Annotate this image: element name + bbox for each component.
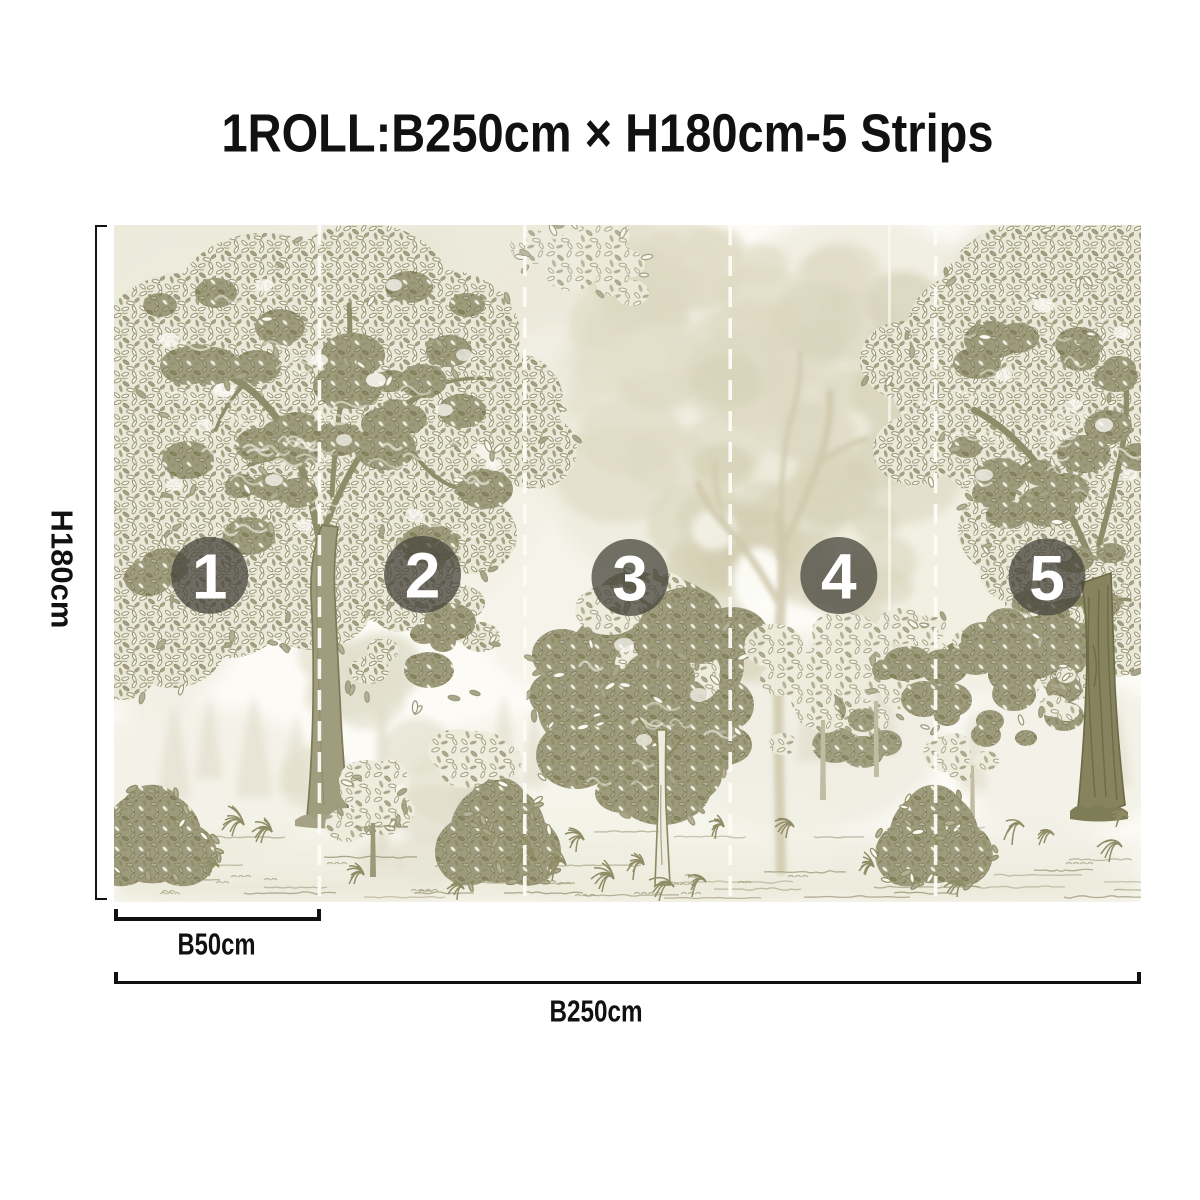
svg-text:B250cm: B250cm bbox=[550, 995, 643, 1029]
svg-text:1ROLL:B250cm × H180cm-5 Strips: 1ROLL:B250cm × H180cm-5 Strips bbox=[222, 105, 994, 164]
svg-text:H180cm: H180cm bbox=[44, 510, 79, 629]
svg-text:B50cm: B50cm bbox=[178, 928, 256, 962]
